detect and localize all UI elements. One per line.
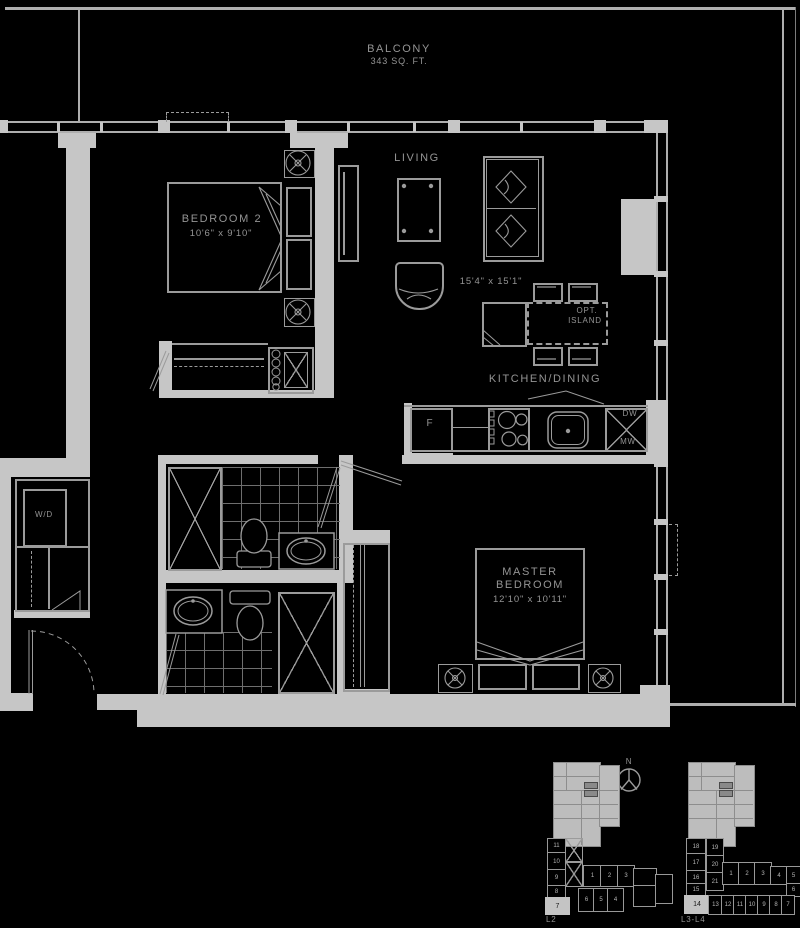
keyplan-l34-label: L3-L4: [681, 915, 705, 924]
plan-linework: [0, 0, 800, 928]
coffee-table-dots: [402, 184, 433, 233]
keyplan-line: [701, 762, 702, 790]
master-label-2: BEDROOM: [496, 579, 564, 591]
sofa-pillows: [496, 171, 526, 247]
keyplan-line: [688, 804, 753, 805]
stove-burners-icon: [489, 411, 527, 446]
keyplan-unit-highlighted: 14: [684, 895, 710, 914]
keyplan-line: [553, 776, 599, 777]
kitchen-dining-label: KITCHEN/DINING: [489, 373, 601, 385]
keyplan-line: [581, 790, 582, 845]
bedroom2-dimensions: 10'6" x 9'10": [190, 228, 253, 239]
keyplan-line: [553, 804, 618, 805]
keyplan-unit: [655, 874, 673, 904]
vanity-sink-icon: [279, 533, 334, 569]
keyplan-elevator: [565, 838, 583, 863]
keyplan-line: [688, 776, 734, 777]
keyplan-line: [688, 818, 753, 819]
keyplan-core-detail: [719, 790, 733, 797]
keyplan-core-detail: [584, 790, 598, 797]
bed-pillows: [259, 187, 281, 290]
keyplan-l2-label: L2: [546, 915, 557, 924]
master-label-1: MASTER: [502, 566, 557, 578]
bedroom2-door: [150, 351, 169, 391]
keyplan-unit-highlighted: 7: [545, 897, 570, 915]
ceiling-lamp-icon: [286, 151, 310, 175]
master-door: [341, 461, 402, 485]
bed-pillows: [477, 642, 583, 665]
north-arrow-icon: [618, 769, 640, 791]
keyplan-unit: [633, 885, 656, 907]
table-fold-line: [483, 330, 500, 346]
living-label: LIVING: [394, 152, 440, 164]
keyplan-line: [716, 790, 717, 845]
ceiling-lamp-icon: [286, 300, 310, 324]
living-dimensions: 15'4" x 15'1": [460, 276, 523, 287]
keyplan-core-detail: [719, 782, 733, 789]
north-label: N: [626, 757, 633, 766]
vanity-sink-icon: [166, 590, 222, 633]
keyplan-unit: 4: [607, 888, 624, 912]
ceiling-lamp-icon: [445, 668, 465, 688]
keyplan-unit: 7: [781, 895, 795, 915]
bath1-door: [318, 467, 340, 528]
balcony-label: BALCONY: [367, 43, 431, 55]
bath2-door: [160, 634, 179, 695]
entry-door: [29, 630, 94, 694]
keyplan-elevator: [565, 861, 583, 887]
toilet-icon: [237, 519, 271, 567]
ceiling-lamp-icon: [593, 668, 613, 688]
chair-back-lines: [537, 287, 591, 359]
kitchen-sink-icon: [548, 412, 588, 448]
floorplan-canvas: W/D F DW MW OPT. ISLAND: [0, 0, 800, 928]
keyplan-core-detail: [584, 782, 598, 789]
keyplan-line: [566, 762, 567, 790]
keyplan-line: [553, 818, 618, 819]
master-dimensions: 12'10" x 10'11": [493, 594, 567, 605]
wd-closet-door: [52, 591, 80, 610]
balcony-area: 343 SQ. FT.: [371, 56, 428, 66]
toilet-icon: [230, 591, 270, 640]
upper-cabinet-line: [528, 391, 604, 404]
bedroom2-label: BEDROOM 2: [182, 213, 262, 225]
utility-shelf-circles: [272, 350, 280, 390]
armchair-cushion: [399, 289, 438, 299]
